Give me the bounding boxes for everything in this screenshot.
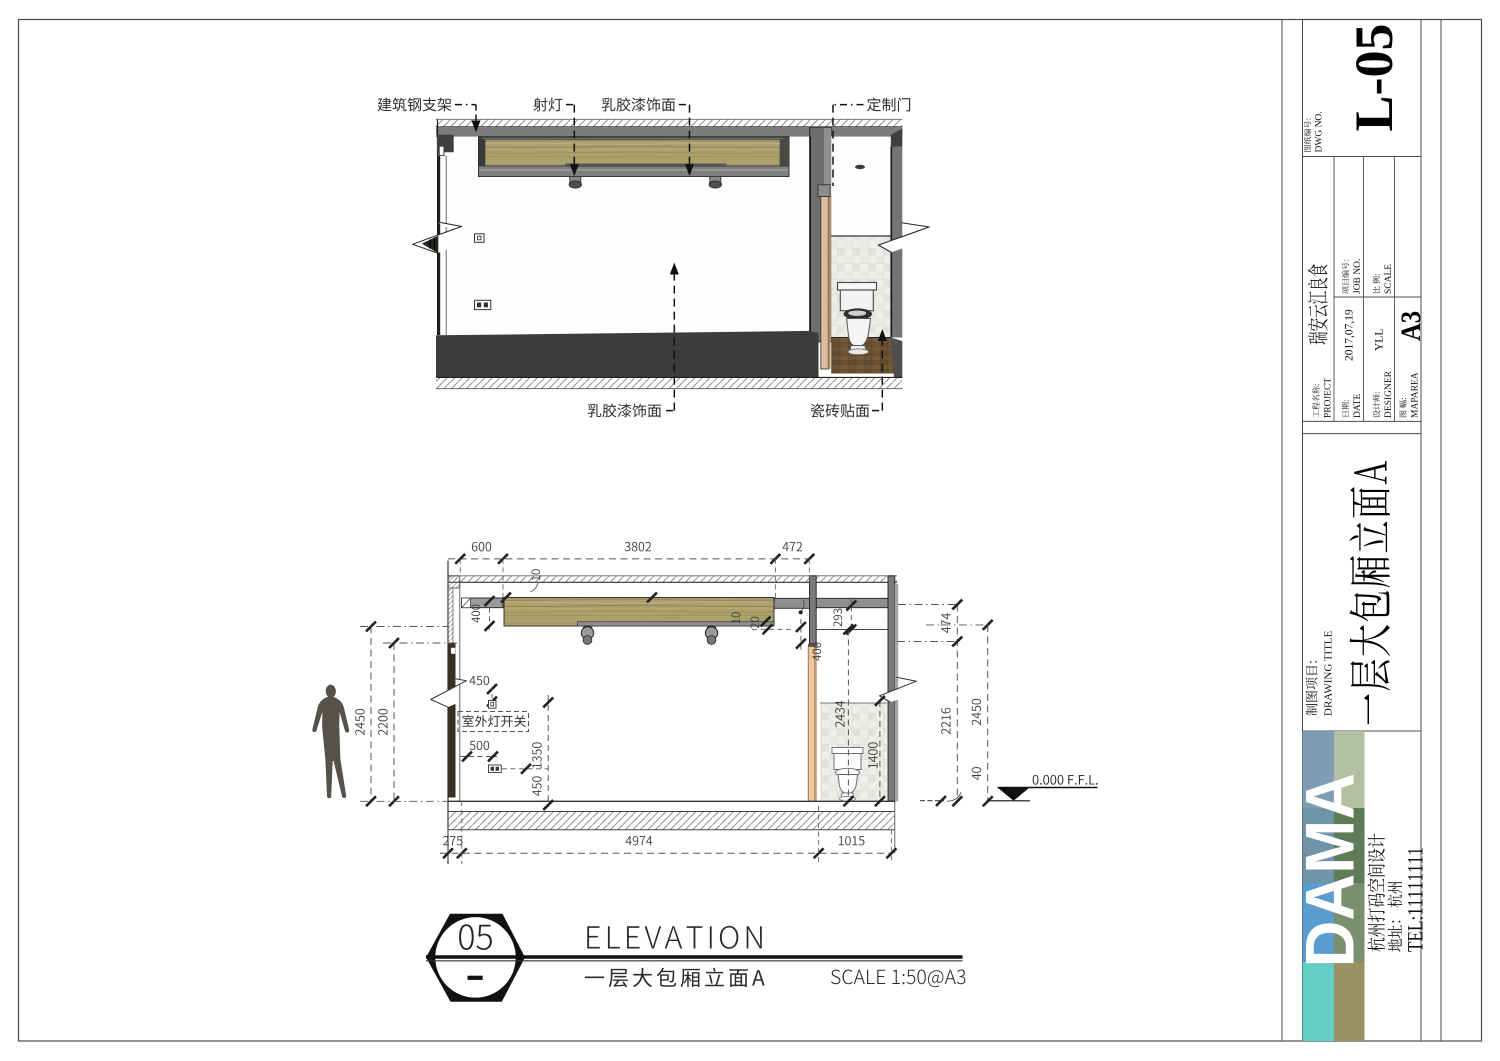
svg-text:SCALE: SCALE <box>1384 264 1394 294</box>
svg-text:DRAWING TITLE: DRAWING TITLE <box>1323 630 1335 716</box>
svg-text:DATE: DATE <box>1353 394 1363 418</box>
svg-text:DESIGNER: DESIGNER <box>1384 370 1394 418</box>
svg-text:L-05: L-05 <box>1344 24 1404 132</box>
svg-text:DWG NO.: DWG NO. <box>1315 111 1325 152</box>
svg-text:MAPAREA: MAPAREA <box>1411 372 1421 418</box>
svg-text:YLL: YLL <box>1374 329 1386 351</box>
svg-text:2017,07,19: 2017,07,19 <box>1344 309 1356 361</box>
svg-text:PROJECT: PROJECT <box>1324 378 1334 418</box>
svg-text:JOB NO.: JOB NO. <box>1353 259 1363 294</box>
